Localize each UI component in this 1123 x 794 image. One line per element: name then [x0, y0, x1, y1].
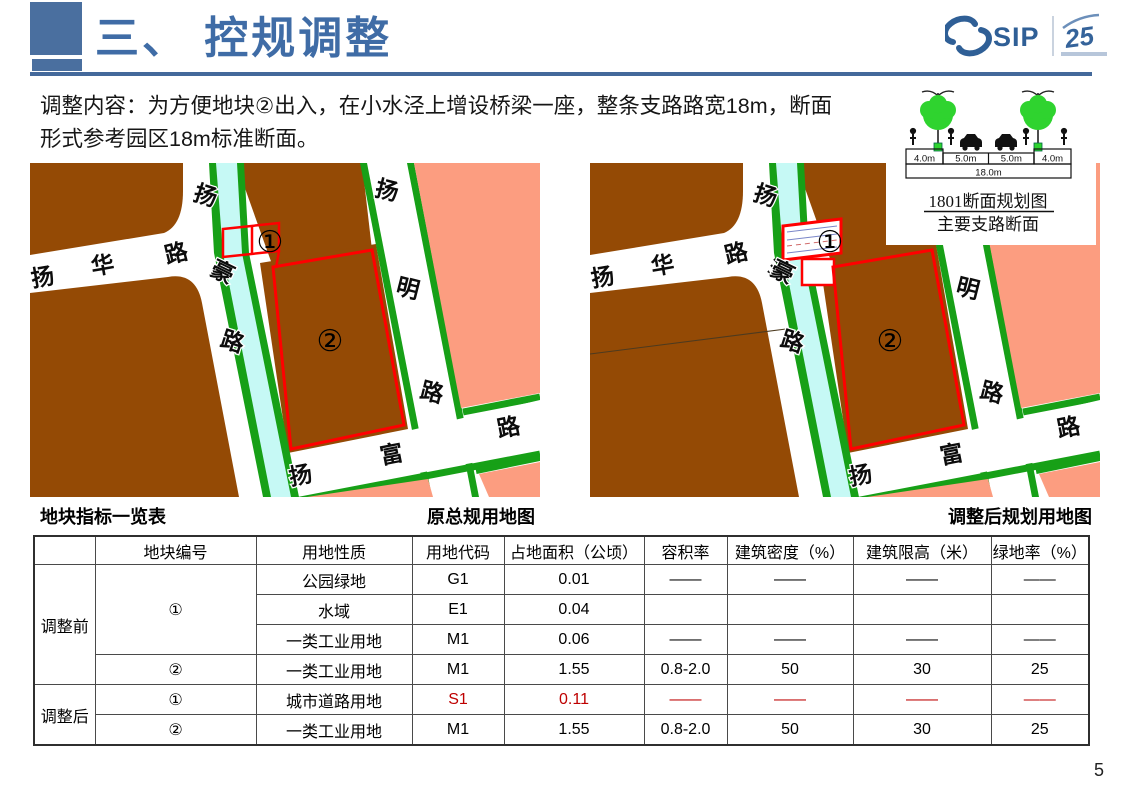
page-title: 三、 控规调整 — [95, 2, 392, 66]
col-header-land-code: 用地代码 — [412, 536, 504, 565]
land-use-cell: 水域 — [256, 595, 412, 625]
col-header-green-rate: 绿地率（%） — [991, 536, 1089, 565]
far-cell: 0.8-2.0 — [644, 655, 727, 685]
density-cell: 50 — [727, 715, 853, 746]
dim-label: 4.0m — [1042, 154, 1063, 165]
road-label: 富 — [378, 439, 406, 469]
col-header-blank — [34, 536, 95, 565]
group-after-cell: 调整后 — [34, 685, 95, 746]
land-use-cell: 一类工业用地 — [256, 655, 412, 685]
col-header-density: 建筑密度（%） — [727, 536, 853, 565]
section-caption-2: 主要支路断面 — [937, 215, 1039, 234]
map-original-plan: 扬 华 路 扬 豪 路 扬 明 路 扬 富 路 ① ② — [30, 163, 540, 497]
sip-logo-text: SIP — [993, 22, 1040, 52]
parcel-cell: ① — [95, 565, 256, 655]
description-line-1: 调整内容：为方便地块②出入，在小水泾上增设桥梁一座，整条支路路宽18m，断面 — [40, 90, 870, 123]
density-cell: —— — [727, 565, 853, 595]
left-map-caption: 原总规用地图 — [396, 503, 566, 529]
right-map-caption: 调整后规划用地图 — [926, 503, 1092, 529]
green-cell — [991, 595, 1089, 625]
parcel-1-label: ① — [817, 226, 844, 259]
sip-logo: SIP 25 — [945, 10, 1115, 62]
col-header-land-use: 用地性质 — [256, 536, 412, 565]
density-cell-highlighted: —— — [727, 685, 853, 715]
height-cell — [853, 595, 991, 625]
height-cell: —— — [853, 565, 991, 595]
road-label: 扬 — [30, 262, 56, 292]
green-cell: 25 — [991, 715, 1089, 746]
area-cell: 0.04 — [504, 595, 644, 625]
green-cell-highlighted: —— — [991, 685, 1089, 715]
height-cell: 30 — [853, 655, 991, 685]
area-cell: 1.55 — [504, 715, 644, 746]
description: 调整内容：为方便地块②出入，在小水泾上增设桥梁一座，整条支路路宽18m，断面 形… — [40, 90, 870, 156]
code-cell-highlighted: S1 — [412, 685, 504, 715]
code-cell: M1 — [412, 715, 504, 746]
road-label: 扬 — [287, 460, 315, 490]
col-header-parcel-no: 地块编号 — [95, 536, 256, 565]
density-cell: 50 — [727, 655, 853, 685]
land-use-cell: 一类工业用地 — [256, 715, 412, 746]
description-line-2: 形式参考园区18m标准断面。 — [40, 123, 870, 156]
road-label: 华 — [89, 250, 116, 280]
dim-label: 5.0m — [955, 154, 976, 165]
code-cell: G1 — [412, 565, 504, 595]
header-accent-square — [30, 2, 82, 55]
land-use-cell: 公园绿地 — [256, 565, 412, 595]
height-cell: —— — [853, 625, 991, 655]
land-use-cell: 城市道路用地 — [256, 685, 412, 715]
area-cell-highlighted: 0.11 — [504, 685, 644, 715]
page-number: 5 — [1094, 760, 1104, 781]
col-header-area: 占地面积（公顷） — [504, 536, 644, 565]
col-header-height-limit: 建筑限高（米） — [853, 536, 991, 565]
far-cell-highlighted: —— — [644, 685, 727, 715]
road-section-diagram: 4.0m 5.0m 5.0m 4.0m 18.0m 1801断面规划图 主要支路… — [886, 85, 1096, 245]
far-cell: —— — [644, 565, 727, 595]
slide: 三、 控规调整 SIP 25 调整内容：为方便地块②出入，在小水泾上增设桥梁一座… — [0, 0, 1123, 794]
table-row: 调整前 ① 公园绿地 G1 0.01 —— —— —— —— — [34, 565, 1089, 595]
road-label: 华 — [649, 250, 676, 280]
land-use-cell: 一类工业用地 — [256, 625, 412, 655]
road-label: 扬 — [847, 460, 875, 490]
table-row: 调整后 ① 城市道路用地 S1 0.11 —— —— —— —— — [34, 685, 1089, 715]
road-label: 富 — [938, 439, 966, 469]
far-cell: 0.8-2.0 — [644, 715, 727, 746]
col-header-far: 容积率 — [644, 536, 727, 565]
green-cell: 25 — [991, 655, 1089, 685]
parcel-2-label: ② — [317, 325, 344, 358]
indicator-table: 地块编号 用地性质 用地代码 占地面积（公顷） 容积率 建筑密度（%） 建筑限高… — [33, 535, 1090, 746]
table-caption: 地块指标一览表 — [40, 503, 166, 529]
green-cell: —— — [991, 625, 1089, 655]
header-accent-bar — [32, 59, 82, 71]
code-cell: E1 — [412, 595, 504, 625]
dim-label: 4.0m — [914, 154, 935, 165]
parcel-2-label: ② — [877, 325, 904, 358]
far-cell: —— — [644, 625, 727, 655]
parcel-cell: ② — [95, 715, 256, 746]
density-cell: —— — [727, 625, 853, 655]
parcel-cell: ① — [95, 685, 256, 715]
area-cell: 0.06 — [504, 625, 644, 655]
area-cell: 1.55 — [504, 655, 644, 685]
sip-swoosh-icon — [945, 19, 989, 54]
table-row: ② 一类工业用地 M1 1.55 0.8-2.0 50 30 25 — [34, 715, 1089, 746]
density-cell — [727, 595, 853, 625]
header-rule — [30, 72, 1092, 76]
section-caption-1: 1801断面规划图 — [929, 192, 1048, 211]
code-cell: M1 — [412, 625, 504, 655]
height-cell-highlighted: —— — [853, 685, 991, 715]
logo-tagline — [1061, 52, 1107, 56]
code-cell: M1 — [412, 655, 504, 685]
dim-label: 5.0m — [1001, 154, 1022, 165]
height-cell: 30 — [853, 715, 991, 746]
group-before-cell: 调整前 — [34, 565, 95, 685]
far-cell — [644, 595, 727, 625]
table-header-row: 地块编号 用地性质 用地代码 占地面积（公顷） 容积率 建筑密度（%） 建筑限高… — [34, 536, 1089, 565]
parcel-cell: ② — [95, 655, 256, 685]
road-label: 扬 — [590, 262, 616, 292]
area-cell: 0.01 — [504, 565, 644, 595]
total-width-label: 18.0m — [975, 168, 1001, 179]
green-cell: —— — [991, 565, 1089, 595]
table-row: ② 一类工业用地 M1 1.55 0.8-2.0 50 30 25 — [34, 655, 1089, 685]
parcel-1-label: ① — [257, 226, 284, 259]
